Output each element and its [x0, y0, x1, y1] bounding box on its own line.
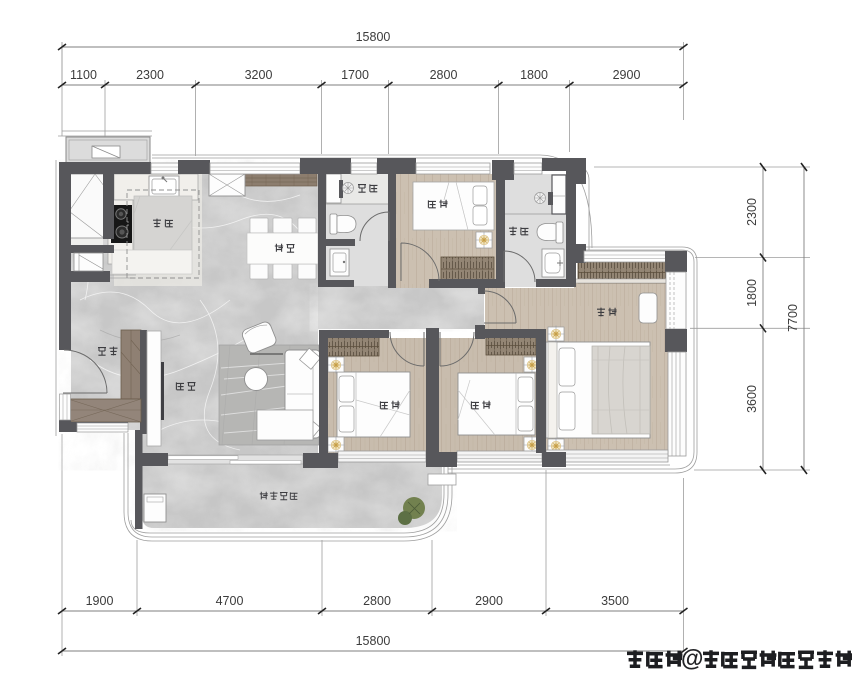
svg-text:2300: 2300	[136, 68, 164, 82]
svg-text:15800: 15800	[356, 634, 391, 648]
svg-text:1900: 1900	[86, 594, 114, 608]
svg-text:1100: 1100	[70, 68, 97, 82]
svg-text:1700: 1700	[341, 68, 369, 82]
svg-text:7700: 7700	[786, 304, 800, 332]
svg-text:15800: 15800	[356, 30, 391, 44]
svg-text:2800: 2800	[363, 594, 391, 608]
svg-text:1800: 1800	[745, 279, 759, 307]
svg-text:3500: 3500	[601, 594, 629, 608]
svg-text:2300: 2300	[745, 198, 759, 226]
svg-text:2900: 2900	[613, 68, 641, 82]
svg-text:3200: 3200	[245, 68, 273, 82]
svg-text:4700: 4700	[216, 594, 244, 608]
svg-text:3600: 3600	[745, 385, 759, 413]
svg-text:2800: 2800	[430, 68, 458, 82]
svg-text:@: @	[681, 645, 703, 671]
svg-text:2900: 2900	[475, 594, 503, 608]
svg-text:1800: 1800	[520, 68, 548, 82]
